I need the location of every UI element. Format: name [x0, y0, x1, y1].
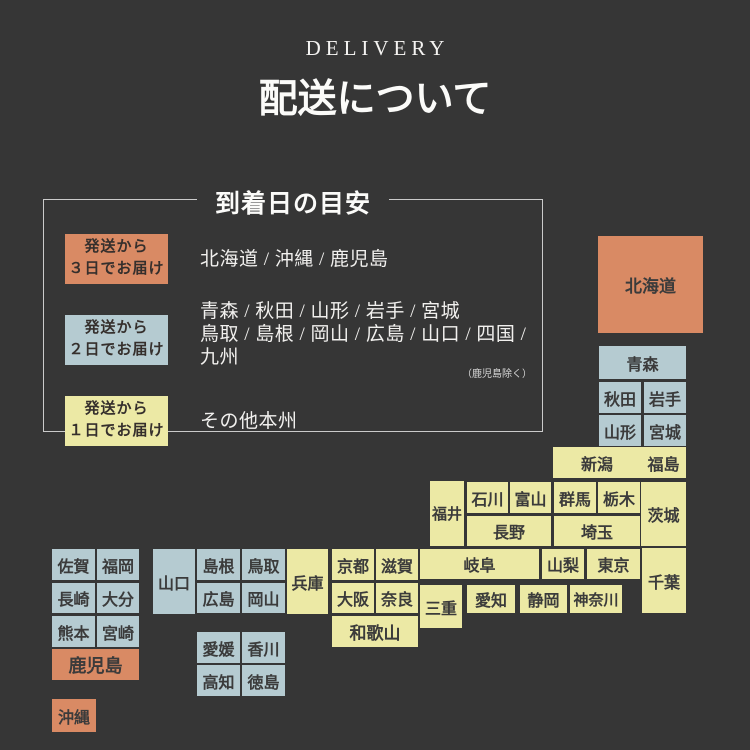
tile-shimane: 島根	[197, 549, 240, 580]
tile-miyazaki: 宮崎	[97, 616, 139, 647]
tile-kanagawa: 神奈川	[570, 585, 622, 613]
tile-ishikawa: 石川	[467, 482, 508, 513]
tile-miyagi: 宮城	[644, 415, 686, 446]
tile-gunma: 群馬	[554, 482, 596, 513]
tile-aomori: 青森	[599, 346, 686, 379]
tile-kumamoto: 熊本	[52, 616, 95, 647]
tile-akita: 秋田	[599, 382, 641, 413]
tile-iwate: 岩手	[644, 382, 686, 413]
tile-fukuoka: 福岡	[97, 549, 139, 580]
tile-fukui: 福井	[430, 481, 464, 546]
tile-yamanashi: 山梨	[542, 549, 584, 579]
tile-kagoshima: 鹿児島	[52, 649, 139, 680]
tile-okinawa: 沖縄	[52, 699, 96, 732]
tile-fukushima: 福島	[641, 447, 686, 478]
tile-nara: 奈良	[376, 583, 418, 613]
tile-hokkaido: 北海道	[598, 236, 703, 333]
tile-ibaraki: 茨城	[641, 482, 686, 546]
tile-niigata: 新潟	[553, 447, 641, 478]
tile-nagano: 長野	[467, 516, 551, 546]
tile-tochigi: 栃木	[598, 482, 640, 513]
tile-mie: 三重	[420, 585, 462, 628]
tile-osaka: 大阪	[332, 583, 374, 613]
tile-ehime: 愛媛	[197, 632, 240, 663]
tile-hiroshima: 広島	[197, 583, 240, 613]
tile-aichi: 愛知	[467, 585, 515, 613]
tile-yamaguchi: 山口	[153, 549, 195, 614]
tile-shizuoka: 静岡	[520, 585, 567, 613]
tile-chiba: 千葉	[642, 548, 686, 613]
tile-tottori: 鳥取	[242, 549, 285, 580]
tile-saga: 佐賀	[52, 549, 95, 580]
tile-toyama: 富山	[510, 482, 551, 513]
tile-shiga: 滋賀	[376, 549, 418, 580]
tile-kagawa: 香川	[242, 632, 285, 663]
tile-kyoto: 京都	[332, 549, 374, 580]
tile-nagasaki: 長崎	[52, 583, 95, 613]
tile-kochi: 高知	[197, 665, 240, 696]
tile-tokushima: 徳島	[242, 665, 285, 696]
tile-hyogo: 兵庫	[287, 549, 328, 614]
delivery-info-page: DELIVERY 配送について 到着日の目安 発送から３日でお届け北海道 / 沖…	[0, 0, 750, 750]
tile-wakayama: 和歌山	[332, 616, 418, 647]
tile-oita: 大分	[97, 583, 139, 613]
tile-yamagata: 山形	[599, 415, 641, 446]
tile-okayama: 岡山	[242, 583, 285, 613]
tile-gifu: 岐阜	[420, 549, 539, 579]
japan-map: 北海道青森秋田岩手山形宮城新潟福島福井石川富山群馬栃木茨城長野埼玉岐阜山梨東京千…	[0, 0, 750, 750]
tile-tokyo: 東京	[587, 549, 640, 579]
tile-saitama: 埼玉	[554, 516, 640, 546]
